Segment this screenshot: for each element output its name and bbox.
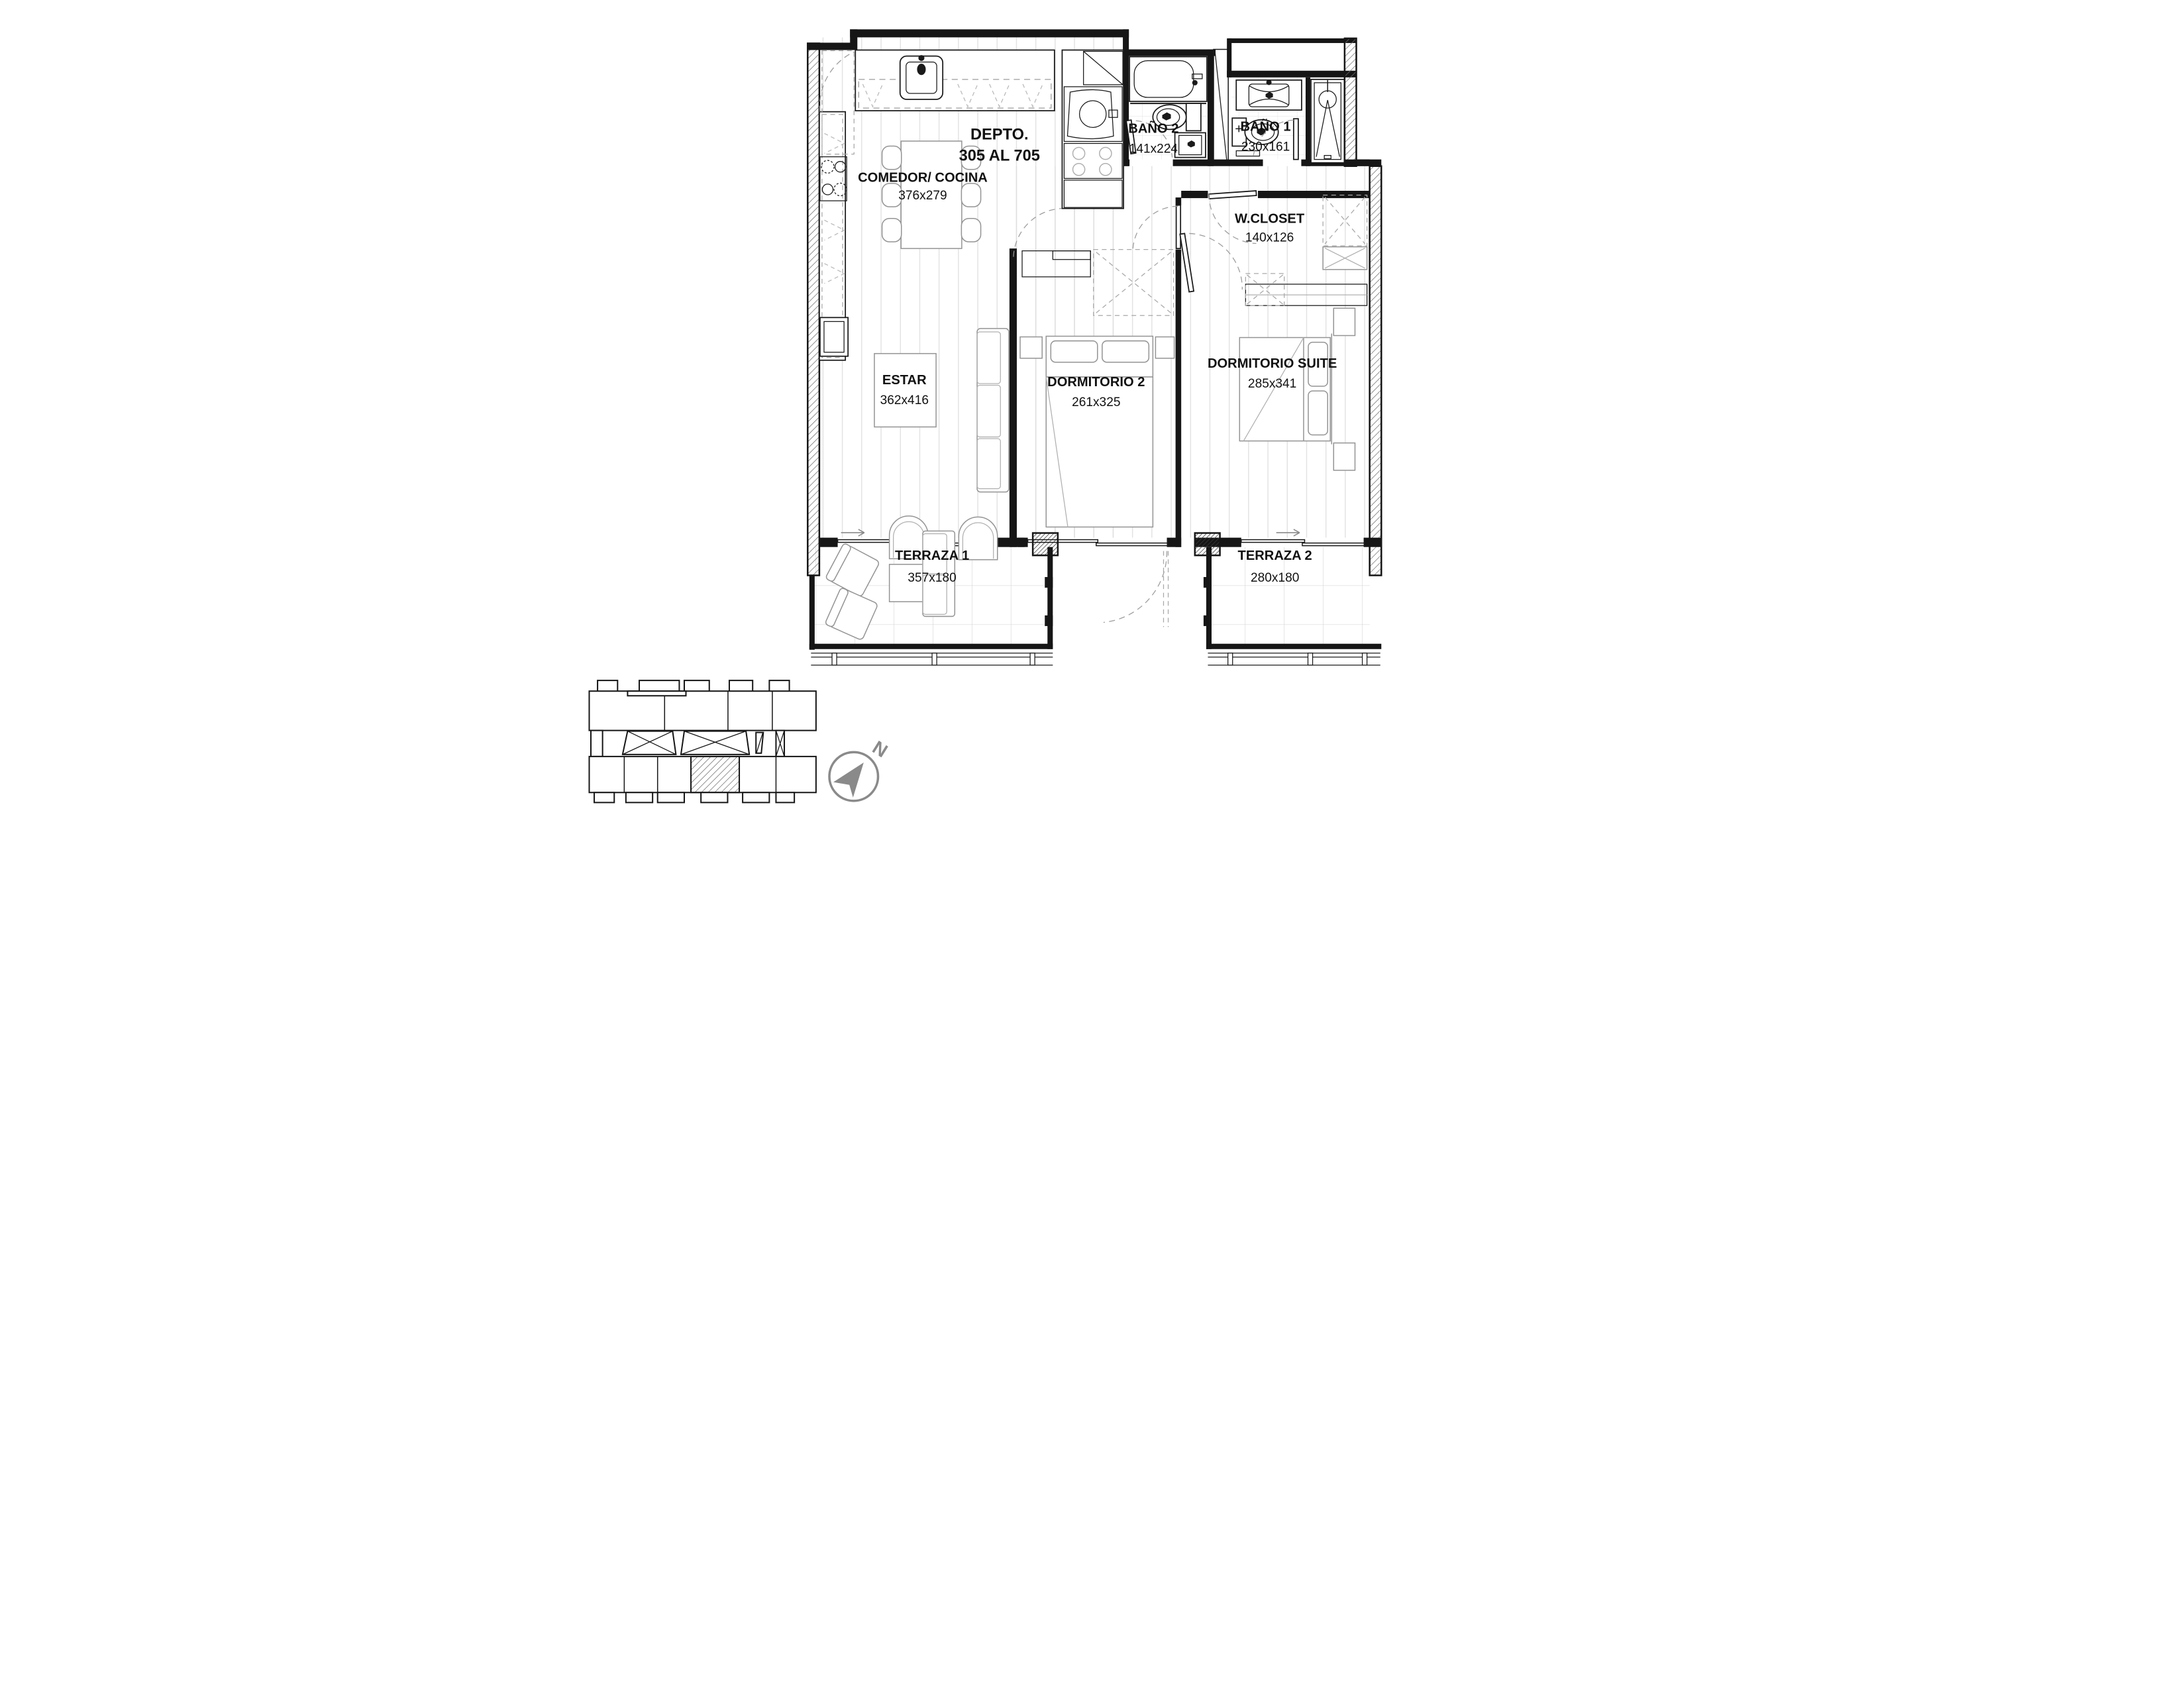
wall-bath-bottom-a (1172, 160, 1263, 166)
wall-shower-partition (1305, 78, 1310, 166)
room-label-bano1: BAÑO 1 (1240, 119, 1290, 134)
room-dims-terraza2: 280x180 (1250, 571, 1298, 585)
wall-niche-top (807, 42, 857, 50)
pillow (1051, 341, 1097, 362)
room-dims-suite: 285x341 (1247, 377, 1296, 391)
wall-top-right-thin (1228, 38, 1356, 43)
north-arrow-icon (833, 763, 864, 798)
wall-bano2-right (1207, 50, 1213, 166)
bed-dormitorio2 (1046, 337, 1153, 527)
plan-title-line2: 305 AL 705 (959, 148, 1039, 165)
room-label-wcloset: W.CLOSET (1235, 211, 1305, 226)
nightstand (1333, 308, 1355, 335)
wall-bano2-top (1123, 50, 1216, 56)
sliding-door-suite (1241, 540, 1364, 546)
keyplan-top-block (589, 691, 815, 730)
floor-plan-drawing: DEPTO. 305 AL 705 COMEDOR/ COCINA 376x27… (543, 0, 1642, 850)
wall-terraza2-left (1206, 547, 1211, 649)
wall-stub (1017, 538, 1027, 547)
keyplan-core (591, 731, 784, 757)
wall-wcloset-a (1181, 191, 1208, 198)
exterior-door-arc (1103, 551, 1167, 623)
nightstand (1155, 337, 1174, 358)
room-dims-comedor: 376x279 (898, 189, 947, 203)
room-label-terraza2: TERRAZA 2 (1237, 549, 1312, 563)
room-dims-terraza1: 357x180 (908, 571, 956, 585)
wall-right-upper (1344, 38, 1356, 166)
wall-stub (1363, 538, 1381, 547)
wall-terraza1-bottom (809, 644, 1053, 649)
dining-chair (882, 146, 901, 170)
appliance-column (1062, 50, 1123, 209)
wall-terraza1-left (809, 576, 814, 650)
wall-bano1-top (1227, 71, 1357, 78)
wall-wcloset-b (1257, 191, 1369, 198)
room-dims-bano2: 141x224 (1129, 142, 1178, 156)
room-dims-estar: 362x416 (880, 394, 928, 407)
room-dims-wcloset: 140x126 (1245, 231, 1293, 245)
bathtub (1129, 57, 1207, 103)
wall-dorm2-suite (1175, 250, 1181, 547)
room-label-terraza1: TERRAZA 1 (894, 549, 968, 563)
key-plan (589, 680, 815, 802)
room-label-suite: DORMITORIO SUITE (1207, 356, 1336, 371)
room-dims-bano1: 230x161 (1241, 140, 1289, 154)
room-label-bano2: BAÑO 2 (1128, 121, 1178, 136)
wall-clip (1045, 577, 1053, 588)
wall-right-step (1356, 160, 1381, 166)
north-label: N (868, 736, 891, 761)
wall-stub (1167, 538, 1181, 547)
room-label-comedor: COMEDOR/ COCINA (858, 170, 988, 185)
keyplan-bottom-tabs (594, 792, 794, 802)
sofa (977, 329, 1009, 492)
duct-diagonal (1215, 51, 1227, 162)
pillow (1102, 341, 1148, 362)
pillow (1308, 391, 1327, 435)
vanity-bano2 (1174, 132, 1205, 157)
floor-plan-page: DEPTO. 305 AL 705 COMEDOR/ COCINA 376x27… (543, 0, 1642, 850)
keyplan-top-tabs (598, 680, 790, 692)
keyplan-unit-highlighted (691, 757, 739, 792)
compass: N (829, 736, 892, 800)
wall-estar-dorm2 (1009, 248, 1016, 547)
room-label-dormitorio2: DORMITORIO 2 (1047, 375, 1145, 390)
nightstand (1333, 443, 1355, 470)
wall-stub (819, 538, 837, 547)
wall-left-structural (807, 43, 819, 575)
dining-chair (961, 219, 980, 242)
terrace-railings (811, 653, 1380, 665)
wall-clip (1203, 615, 1211, 626)
wall-right-structural (1369, 166, 1381, 576)
wall-stub (1175, 197, 1181, 205)
plan-title-line1: DEPTO. (970, 126, 1028, 143)
wall-top-kitchen (850, 29, 1129, 37)
wall-terraza2-bottom (1206, 644, 1380, 649)
shower (1311, 79, 1344, 163)
room-label-estar: ESTAR (882, 373, 926, 388)
wall-clip (1203, 577, 1211, 588)
dining-chair (961, 184, 980, 207)
coffee-table (874, 354, 935, 427)
wall-clip (1045, 615, 1053, 626)
oven (819, 317, 847, 356)
dining-chair (882, 219, 901, 242)
nightstand (1019, 337, 1041, 358)
column-terraza1 (1033, 533, 1058, 556)
wall-terraza1-right (1047, 547, 1053, 649)
kitchen-counter-top (855, 50, 1055, 111)
kitchen-sink (900, 55, 942, 99)
vanity-bano1 (1236, 79, 1302, 110)
exterior-gap (1103, 551, 1168, 627)
room-dims-dormitorio2: 261x325 (1072, 396, 1120, 409)
